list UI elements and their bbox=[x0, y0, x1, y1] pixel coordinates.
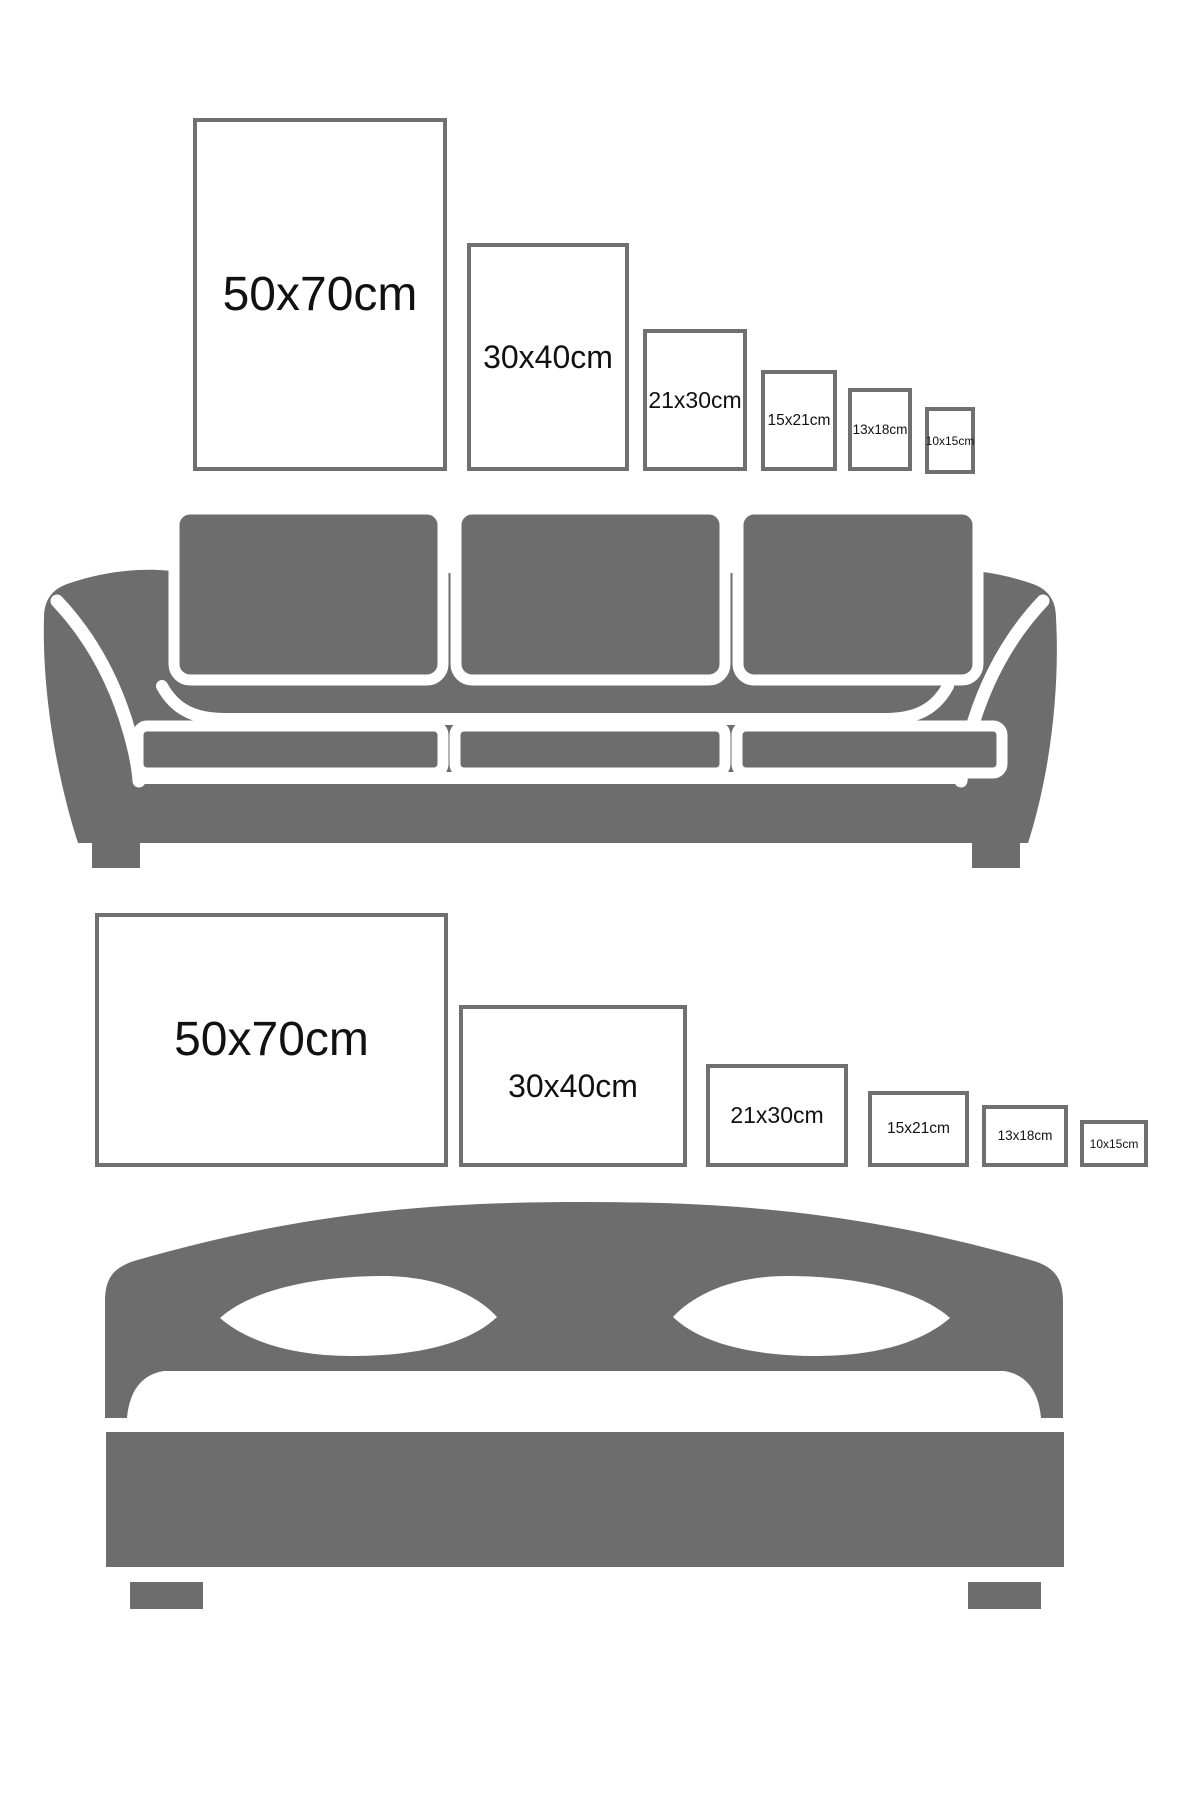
seat-cushion-middle bbox=[455, 726, 725, 773]
sofa-illustration bbox=[0, 480, 1200, 880]
size-label: 10x15cm bbox=[1090, 1138, 1139, 1150]
size-label: 30x40cm bbox=[508, 1070, 638, 1102]
size-label: 30x40cm bbox=[483, 341, 613, 373]
size-label: 15x21cm bbox=[887, 1121, 950, 1137]
sofa-foot-right bbox=[972, 843, 1020, 868]
size-frame-50x70-landscape: 50x70cm bbox=[95, 913, 448, 1167]
seat-cushion-left bbox=[138, 726, 443, 773]
size-frame-15x21-landscape: 15x21cm bbox=[868, 1091, 969, 1167]
size-frame-10x15-portrait: 10x15cm bbox=[925, 407, 975, 474]
bed-illustration bbox=[0, 1200, 1200, 1620]
back-cushion-right bbox=[738, 509, 978, 680]
size-label: 50x70cm bbox=[223, 271, 418, 319]
back-cushion-left bbox=[174, 509, 443, 680]
poster-size-guide: 50x70cm 30x40cm 21x30cm 15x21cm 13x18cm … bbox=[0, 0, 1200, 1800]
size-frame-50x70-portrait: 50x70cm bbox=[193, 118, 447, 471]
size-frame-13x18-landscape: 13x18cm bbox=[982, 1105, 1068, 1167]
size-frame-30x40-landscape: 30x40cm bbox=[459, 1005, 687, 1167]
size-label: 13x18cm bbox=[853, 423, 908, 437]
size-label: 21x30cm bbox=[648, 389, 741, 412]
size-frame-21x30-portrait: 21x30cm bbox=[643, 329, 747, 471]
size-frame-15x21-portrait: 15x21cm bbox=[761, 370, 837, 471]
sofa-foot-left bbox=[92, 843, 140, 868]
size-label: 13x18cm bbox=[998, 1129, 1053, 1143]
size-frame-13x18-portrait: 13x18cm bbox=[848, 388, 912, 471]
size-frame-30x40-portrait: 30x40cm bbox=[467, 243, 629, 471]
back-cushion-middle bbox=[456, 509, 725, 680]
bed-base bbox=[106, 1432, 1064, 1567]
bed-foot-left bbox=[130, 1582, 203, 1609]
seat-cushion-right bbox=[737, 726, 1002, 773]
size-label: 15x21cm bbox=[768, 413, 831, 429]
size-label: 10x15cm bbox=[926, 435, 975, 447]
bed-foot-right bbox=[968, 1582, 1041, 1609]
size-frame-10x15-landscape: 10x15cm bbox=[1080, 1120, 1148, 1167]
size-frame-21x30-landscape: 21x30cm bbox=[706, 1064, 848, 1167]
size-label: 21x30cm bbox=[730, 1104, 823, 1127]
size-label: 50x70cm bbox=[174, 1016, 369, 1064]
